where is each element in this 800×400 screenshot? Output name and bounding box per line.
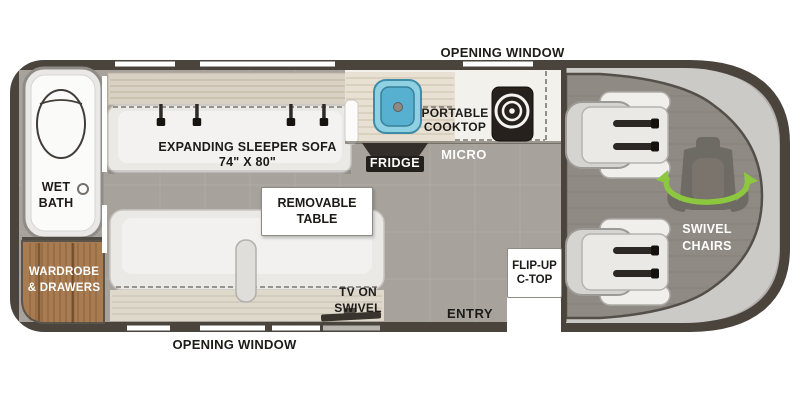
label-swivel-chairs: SWIVEL CHAIRS (669, 221, 745, 255)
table-leg (236, 240, 256, 302)
label-opening-window-top: OPENING WINDOW (400, 45, 605, 61)
removable-table-box: REMOVABLE TABLE (261, 187, 373, 236)
swivel-chair-front (566, 219, 670, 305)
sink-icon (374, 80, 421, 133)
rv-floorplan: OPENING WINDOW OPENING WINDOW WET BATH W… (0, 0, 800, 400)
label-opening-window-bottom: OPENING WINDOW (132, 337, 337, 353)
wet-bath (24, 68, 102, 238)
label-micro: MICRO (433, 147, 495, 163)
label-tv-on-swivel: TV ON SWIVEL (323, 285, 393, 316)
label-wet-bath: WET BATH (28, 180, 84, 211)
label-fridge: FRIDGE (362, 156, 428, 172)
cooktop-burner-icon (492, 87, 533, 141)
label-wardrobe: WARDROBE & DRAWERS (24, 265, 104, 296)
label-portable-cooktop: PORTABLE COOKTOP (415, 106, 495, 135)
label-sleeper-sofa: EXPANDING SLEEPER SOFA 74" X 80" (145, 140, 350, 170)
label-entry: ENTRY (438, 306, 502, 322)
toilet-icon (37, 90, 85, 158)
bottom-wall-windows (127, 326, 380, 331)
flip-up-ctop-box: FLIP-UP C-TOP (507, 248, 562, 298)
swivel-chair-rear (566, 92, 670, 178)
entry-opening (507, 295, 561, 333)
